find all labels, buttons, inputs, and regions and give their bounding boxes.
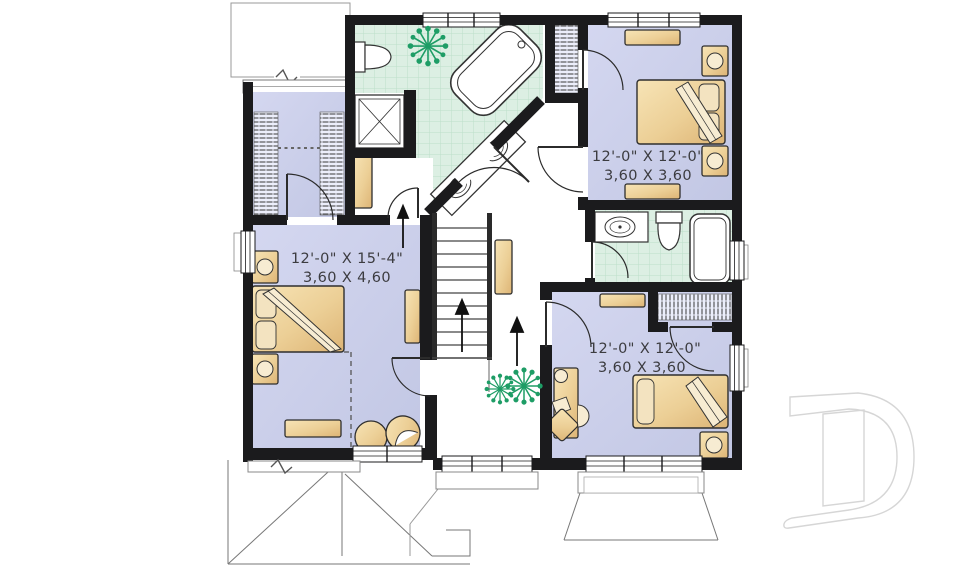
dresser [625, 184, 680, 199]
bathtub-second-bath [690, 214, 730, 284]
bedroom2-door [538, 147, 583, 192]
hall-console [495, 240, 512, 294]
bathroom-window [423, 13, 500, 27]
brand-d-watermark-icon [784, 393, 914, 528]
second-bath-window [730, 241, 748, 280]
walk-in-closet-rod-left [254, 112, 278, 215]
shower [355, 95, 404, 148]
wall-console [405, 290, 420, 343]
bedroom3-closet-rod [658, 294, 732, 320]
vanity-sink-second-bath [595, 212, 648, 242]
dresser [285, 420, 341, 437]
lamp [257, 361, 273, 377]
lamp [707, 53, 723, 69]
hall-bottom-window [442, 456, 532, 472]
bedroom2-dimensions-metric: 3,60 X 3,60 [604, 168, 692, 184]
master-side-window [234, 231, 255, 273]
plant-icon [506, 368, 542, 404]
floor-plan-drawing: 12'-0" X 15'-4" 3,60 X 4,60 12'-0" X 12'… [0, 0, 960, 569]
desk-lamp [555, 370, 568, 383]
pillow [256, 321, 276, 349]
bedroom3-bottom-window [586, 456, 702, 472]
dresser [600, 294, 645, 307]
lamp [706, 437, 722, 453]
walk-in-closet-rod-right [320, 112, 344, 215]
pillow [637, 379, 654, 424]
master-bottom-window [353, 446, 422, 462]
bedroom2-dimensions-imperial: 12'-0" X 12'-0" [592, 149, 704, 165]
floor-plan: 12'-0" X 15'-4" 3,60 X 4,60 12'-0" X 12'… [0, 0, 960, 569]
hall-up-arrow [511, 318, 523, 366]
master-dimensions-metric: 3,60 X 4,60 [303, 270, 391, 286]
master-dimensions-imperial: 12'-0" X 15'-4" [291, 251, 403, 267]
bedroom3-dimensions-imperial: 12'-0" X 12'-0" [589, 341, 701, 357]
bedroom3-dimensions-metric: 3,60 X 3,60 [598, 360, 686, 376]
lamp [707, 153, 723, 169]
bath-cabinet [353, 156, 372, 208]
bedroom2-closet-rod [553, 25, 578, 93]
bedroom3-side-window [730, 345, 748, 391]
bedroom2-window [608, 13, 700, 27]
dresser [625, 30, 680, 45]
stairs-up-arrow [456, 300, 468, 352]
lamp [257, 259, 273, 275]
